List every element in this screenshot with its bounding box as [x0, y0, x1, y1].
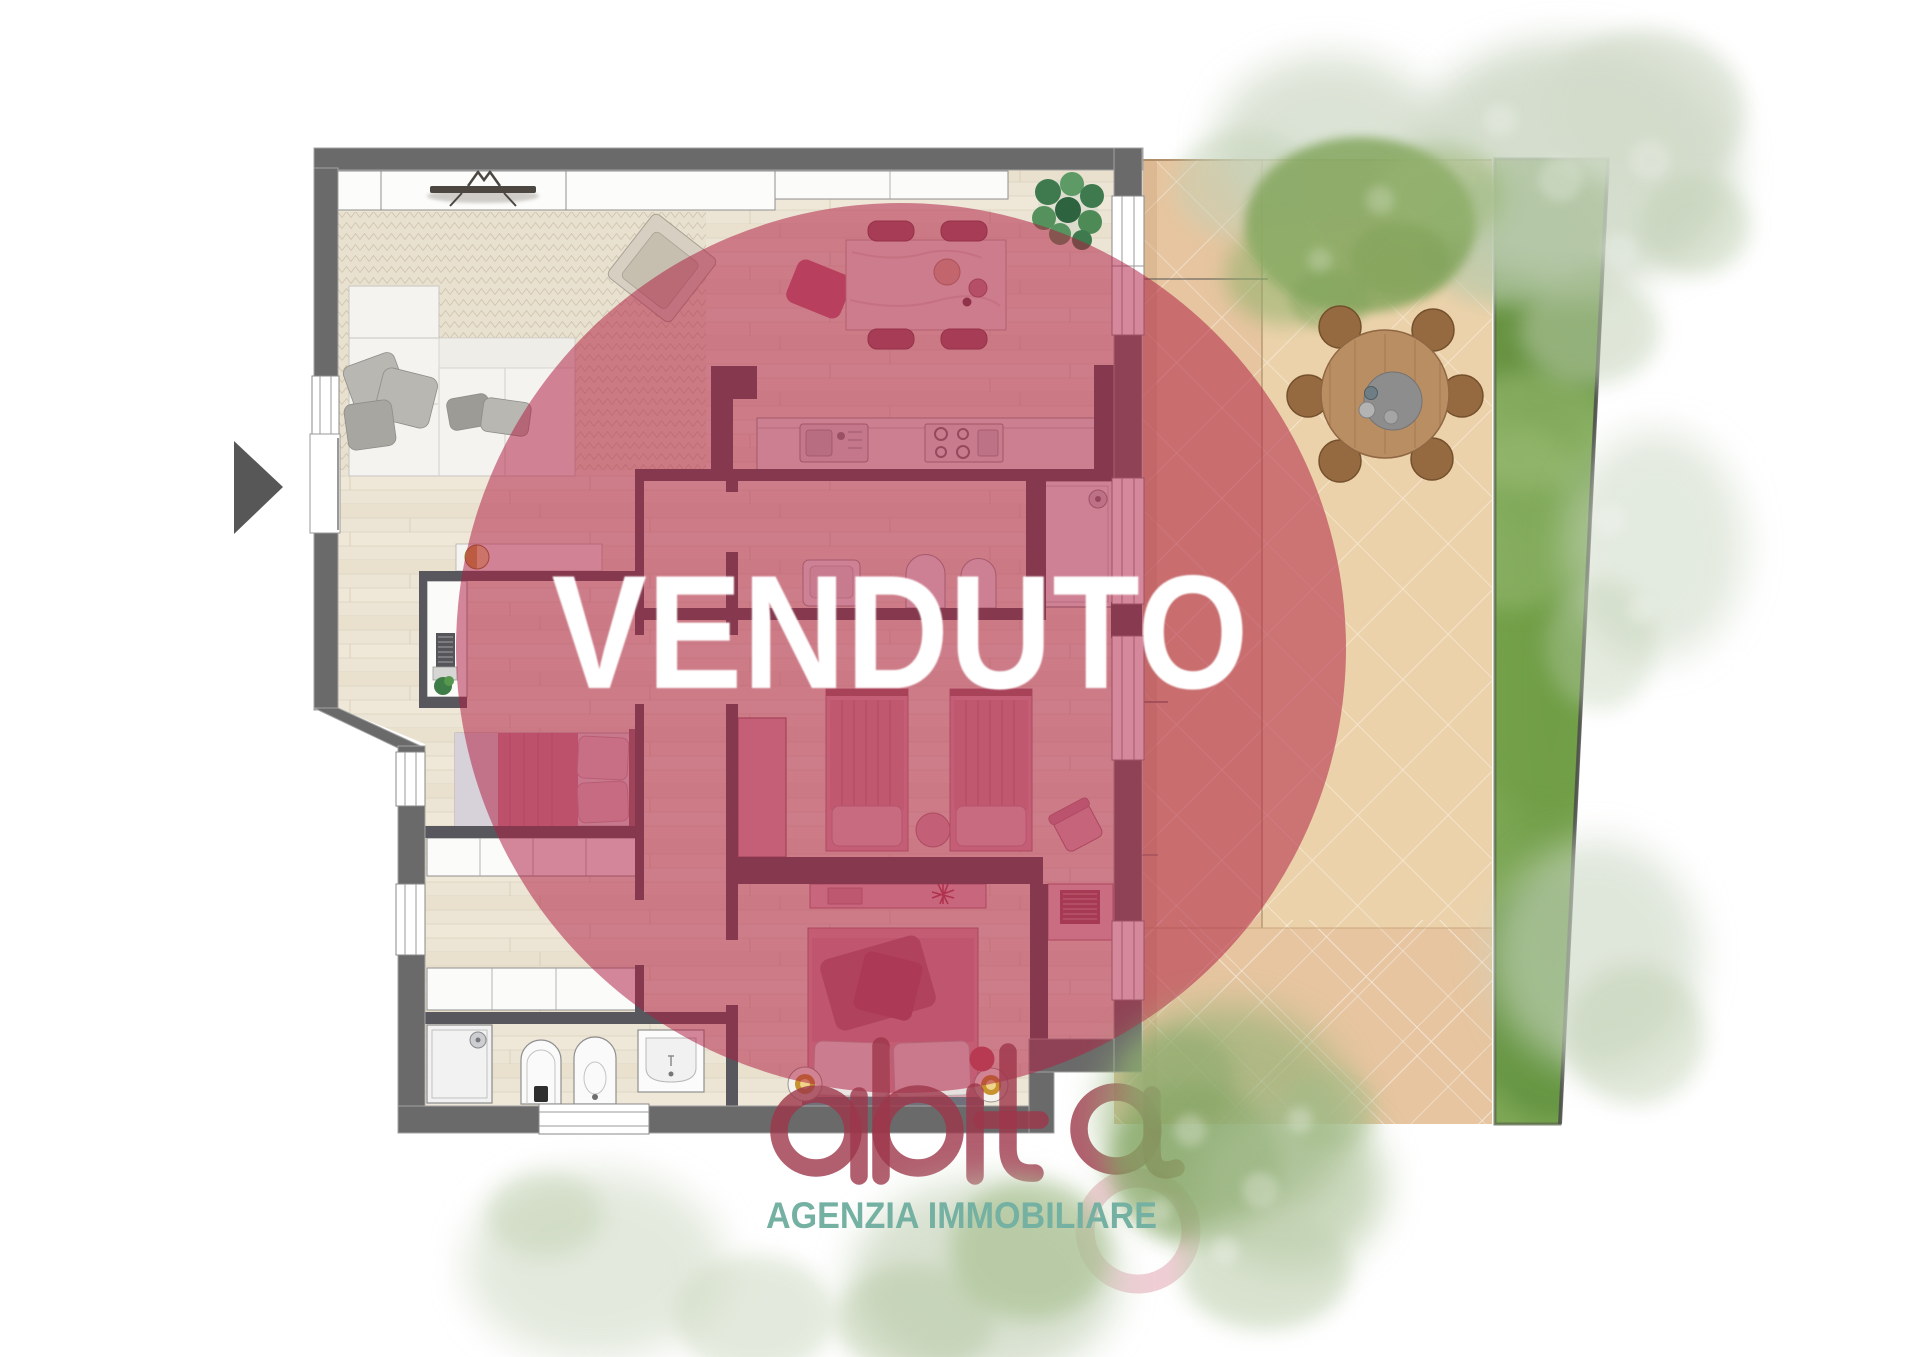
svg-text:AGENZIA IMMOBILIARE: AGENZIA IMMOBILIARE: [766, 1195, 1157, 1236]
svg-text:VENDUTO: VENDUTO: [552, 542, 1249, 723]
